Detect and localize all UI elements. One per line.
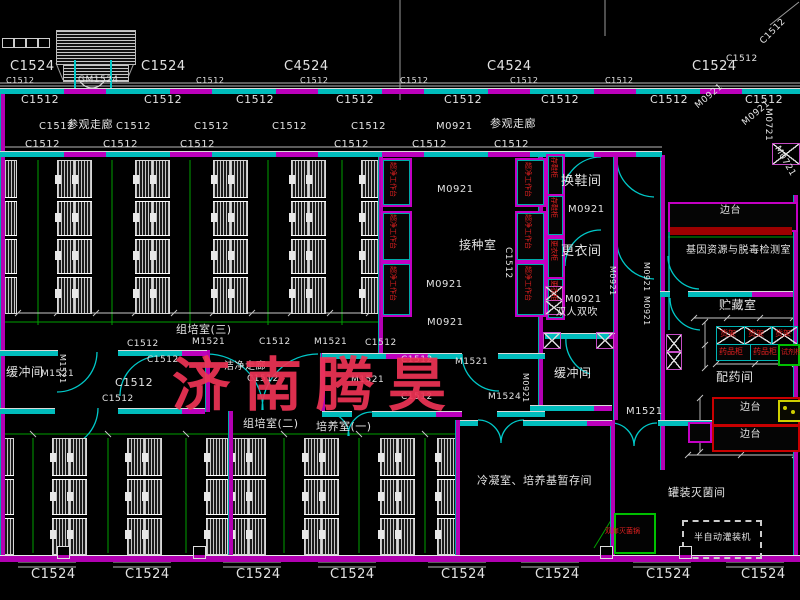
window-label: C1512 — [144, 94, 182, 105]
rack-shelf-line — [304, 514, 322, 519]
equipment-label: 超净工作台 — [389, 162, 396, 197]
rack-mark — [150, 289, 156, 298]
window-label: C1512 — [6, 77, 34, 85]
culture-rack — [321, 438, 339, 555]
rack-mark — [302, 530, 308, 539]
rack-shelf-line — [206, 514, 228, 519]
wall — [455, 420, 460, 557]
door-label: M1524 — [488, 393, 521, 402]
tap-dot — [791, 410, 795, 414]
rack-shelf-line — [231, 514, 249, 519]
rack-shelf-line — [230, 235, 248, 240]
equipment-label: 货架 — [720, 330, 736, 338]
equipment-label: 超净工作台 — [524, 162, 531, 197]
rack-shelf-line — [74, 235, 92, 240]
air-shower-box — [666, 351, 682, 370]
rack-shelf-line — [127, 475, 145, 480]
window-frame-mark — [57, 546, 70, 559]
rack-mark — [228, 289, 234, 298]
room-label: 半自动灌装机 — [694, 534, 751, 543]
rack-mark — [378, 492, 384, 501]
door-arc — [478, 420, 524, 443]
door-label: M0721 — [763, 108, 772, 141]
window-label: C1524 — [535, 568, 580, 581]
rack-mark — [378, 530, 384, 539]
door-arc — [617, 160, 654, 197]
rack-shelf-line — [69, 475, 87, 480]
rack-mark — [142, 530, 148, 539]
rack-shelf-line — [230, 273, 248, 278]
room-label: 缓冲间 — [554, 367, 592, 379]
rack-shelf-line — [308, 197, 326, 202]
window-label: C1512 — [115, 377, 153, 388]
rack-shelf-line — [321, 475, 339, 480]
room-label: 双人双吹 — [556, 308, 598, 318]
rack-mark — [289, 289, 295, 298]
rack-mark — [142, 453, 148, 462]
rack-shelf-line — [291, 273, 309, 278]
staircase-upper — [56, 30, 136, 65]
door-label: M0921 — [426, 280, 463, 290]
equipment-label: 货架 — [748, 330, 764, 338]
rack-shelf-line — [437, 514, 456, 519]
culture-rack — [152, 160, 170, 314]
window-label: C1512 — [180, 140, 215, 150]
rack-mark — [125, 530, 131, 539]
rack-shelf-line — [437, 475, 456, 480]
rack-shelf-line — [152, 273, 170, 278]
window-label: GM1524 — [78, 76, 119, 85]
rack-shelf-line — [74, 273, 92, 278]
wall — [523, 420, 612, 426]
window-label: C1524 — [646, 568, 691, 581]
rack-mark — [125, 453, 131, 462]
rack-shelf-line — [380, 475, 398, 480]
wall — [0, 350, 58, 356]
window-label: C1512 — [196, 77, 224, 85]
window-label: C1512 — [726, 55, 758, 64]
window-label: C1512 — [194, 122, 229, 132]
rack-shelf-line — [152, 197, 170, 202]
culture-rack — [230, 160, 248, 314]
room-label: 换鞋间 — [561, 175, 602, 188]
rack-mark — [55, 213, 61, 222]
rack-mark — [435, 530, 441, 539]
rack-shelf-line — [291, 197, 309, 202]
wall — [497, 411, 545, 417]
rack-mark — [319, 453, 325, 462]
window-label: C1512 — [21, 94, 59, 105]
wall-fixture — [14, 38, 26, 48]
rack-mark — [133, 213, 139, 222]
rack-mark — [306, 251, 312, 260]
door-arc — [611, 423, 657, 446]
bench-top-bar — [670, 227, 792, 235]
door-label: M0921 — [427, 318, 464, 328]
wall — [0, 408, 55, 414]
door-label: M0921 — [642, 296, 650, 326]
window-label: C1512 — [400, 77, 428, 85]
room-label: 组培室(三) — [176, 324, 232, 335]
rack-mark — [319, 530, 325, 539]
rack-mark — [150, 213, 156, 222]
door-label: M0921 — [565, 295, 602, 305]
window-label: C1524 — [741, 568, 786, 581]
equipment-label: 试剂柜 — [781, 349, 800, 356]
rack-mark — [306, 213, 312, 222]
window-label: C1524 — [236, 568, 281, 581]
door-label: M0921 — [437, 185, 474, 195]
equipment-label: 药品柜 — [719, 348, 743, 356]
window-label: C1512 — [503, 247, 512, 279]
rack-shelf-line — [74, 197, 92, 202]
rack-mark — [55, 289, 61, 298]
rack-shelf-line — [213, 197, 231, 202]
window-frame-mark — [679, 546, 692, 559]
window-label: C1512 — [494, 140, 529, 150]
rack-shelf-line — [52, 475, 70, 480]
rack-shelf-line — [380, 514, 398, 519]
equipment-label: 存鞋柜 — [550, 197, 557, 218]
window-label: C1512 — [444, 94, 482, 105]
window-label: C1512 — [351, 122, 386, 132]
window-label: C1512 — [605, 77, 633, 85]
wall — [688, 291, 793, 297]
rack-mark — [72, 251, 78, 260]
door-label: M0921 — [608, 266, 616, 296]
rack-shelf-line — [144, 514, 162, 519]
culture-rack — [144, 438, 162, 555]
rack-mark — [319, 492, 325, 501]
culture-rack — [206, 438, 228, 555]
rack-shelf-line — [213, 235, 231, 240]
watermark: 济南腾昊 — [172, 338, 460, 422]
culture-rack — [69, 438, 87, 555]
wall-fixture — [2, 38, 14, 48]
culture-rack — [308, 160, 326, 314]
room-label: 边台 — [740, 403, 761, 413]
culture-rack — [397, 438, 415, 555]
rack-mark — [228, 213, 234, 222]
room-label: 缓冲间 — [6, 366, 44, 378]
window-label: C4524 — [487, 60, 532, 73]
window-label: C1512 — [334, 140, 369, 150]
rack-mark — [67, 530, 73, 539]
room-label: 基因资源与脱毒检测室 — [686, 246, 791, 256]
window-frame-mark — [193, 546, 206, 559]
window-label: C1524 — [31, 568, 76, 581]
room-label: 配药间 — [716, 371, 754, 383]
window-label: C1524 — [10, 60, 55, 73]
rack-shelf-line — [231, 475, 249, 480]
window-label: C1512 — [650, 94, 688, 105]
rack-shelf-line — [248, 475, 266, 480]
rack-shelf-line — [135, 273, 153, 278]
air-shower-box — [543, 332, 561, 349]
window-label: C1512 — [541, 94, 579, 105]
wall — [228, 411, 233, 557]
door-arc — [668, 256, 699, 289]
equipment-label: 双扉灭菌锅 — [605, 528, 640, 535]
rack-mark — [133, 175, 139, 184]
wall-fixture — [26, 38, 38, 48]
rack-mark — [359, 213, 365, 222]
rack-mark — [289, 251, 295, 260]
counter-box — [688, 422, 712, 443]
rack-shelf-line — [321, 514, 339, 519]
room-label: 培养室(一) — [316, 421, 372, 432]
window-label: C1512 — [510, 77, 538, 85]
rack-mark — [72, 175, 78, 184]
wall — [530, 405, 612, 411]
rack-mark — [359, 251, 365, 260]
rack-mark — [67, 492, 73, 501]
window-label: C1512 — [102, 395, 134, 404]
rack-mark — [289, 175, 295, 184]
sink — [778, 400, 800, 422]
rack-mark — [72, 289, 78, 298]
rack-mark — [125, 492, 131, 501]
rack-shelf-line — [206, 475, 228, 480]
window-label: C1524 — [330, 568, 375, 581]
rack-mark — [142, 492, 148, 501]
equipment-label: 超净工作台 — [524, 214, 531, 249]
window-label: C1512 — [25, 140, 60, 150]
door-label: M1521 — [58, 354, 66, 384]
door-label: M0921 — [642, 262, 650, 292]
rack-shelf-line — [57, 273, 75, 278]
rack-mark — [211, 289, 217, 298]
equipment-label: 更衣柜 — [550, 280, 557, 301]
equipment-label: 超净工作台 — [389, 266, 396, 301]
window-label: C1524 — [441, 568, 486, 581]
window-frame-mark — [600, 546, 613, 559]
rack-mark — [204, 492, 210, 501]
window-label: C1512 — [412, 140, 447, 150]
room-label: 参观走廊 — [67, 119, 113, 130]
rack-mark — [395, 530, 401, 539]
rack-mark — [395, 453, 401, 462]
cad-floorplan: C1524C1524C4524C4524C1524C1512C1512GM152… — [0, 0, 800, 600]
window-label: C1512 — [336, 94, 374, 105]
rack-mark — [395, 492, 401, 501]
rack-mark — [359, 289, 365, 298]
rack-mark — [55, 175, 61, 184]
window-label: C1512 — [103, 140, 138, 150]
rack-shelf-line — [127, 514, 145, 519]
window-label: C1512 — [116, 122, 151, 132]
room-label: 贮藏室 — [719, 299, 757, 311]
wall — [660, 291, 670, 297]
rack-shelf-line — [397, 514, 415, 519]
air-shower-box — [596, 332, 614, 349]
rack-mark — [204, 453, 210, 462]
rack-mark — [246, 530, 252, 539]
rack-shelf-line — [308, 273, 326, 278]
rack-mark — [289, 213, 295, 222]
rack-mark — [246, 492, 252, 501]
rack-mark — [359, 175, 365, 184]
room-label: 更衣间 — [561, 245, 602, 258]
rack-mark — [306, 175, 312, 184]
rack-mark — [204, 530, 210, 539]
rack-mark — [302, 492, 308, 501]
window-label: C1512 — [272, 122, 307, 132]
rack-mark — [306, 289, 312, 298]
rack-shelf-line — [248, 514, 266, 519]
rack-shelf-line — [135, 197, 153, 202]
wall — [0, 88, 5, 560]
rack-shelf-line — [144, 475, 162, 480]
equipment-label: 超净工作台 — [524, 266, 531, 301]
rack-mark — [211, 213, 217, 222]
rack-mark — [211, 251, 217, 260]
rack-mark — [228, 251, 234, 260]
rack-shelf-line — [135, 235, 153, 240]
rack-mark — [435, 492, 441, 501]
culture-rack — [248, 438, 266, 555]
window-label: C4524 — [284, 60, 329, 73]
room-label: 边台 — [740, 430, 761, 440]
rack-shelf-line — [57, 197, 75, 202]
rack-mark — [67, 453, 73, 462]
equipment-label: 更衣柜 — [550, 240, 557, 261]
rack-mark — [50, 530, 56, 539]
room-label: 边台 — [720, 206, 741, 216]
culture-rack — [74, 160, 92, 314]
rack-mark — [302, 453, 308, 462]
rack-mark — [50, 453, 56, 462]
rack-mark — [378, 453, 384, 462]
wall-fixture — [38, 38, 50, 48]
rack-shelf-line — [397, 475, 415, 480]
window-label: C1512 — [127, 340, 159, 349]
equipment-label: 货架 — [775, 330, 791, 338]
door-label: M0921 — [436, 122, 473, 132]
rack-mark — [55, 251, 61, 260]
window-label: C1524 — [125, 568, 170, 581]
wall — [498, 353, 545, 359]
equipment-label: 药品柜 — [753, 348, 777, 356]
rack-mark — [246, 453, 252, 462]
door-arc — [670, 298, 700, 330]
door-label: M0921 — [568, 205, 605, 215]
window-label: C1512 — [300, 77, 328, 85]
equipment-label: 存鞋柜 — [550, 157, 557, 178]
wall — [460, 420, 478, 426]
rack-shelf-line — [57, 235, 75, 240]
equipment-label: 超净工作台 — [389, 214, 396, 249]
door-label: M1521 — [626, 407, 663, 417]
rack-mark — [150, 175, 156, 184]
rack-mark — [228, 175, 234, 184]
rack-mark — [150, 251, 156, 260]
window-label: C1524 — [141, 60, 186, 73]
culture-rack — [437, 438, 456, 555]
rack-mark — [72, 213, 78, 222]
rack-shelf-line — [291, 235, 309, 240]
rack-mark — [50, 492, 56, 501]
rack-shelf-line — [52, 514, 70, 519]
room-label: 冷凝室、培养基暂存间 — [477, 475, 592, 486]
rack-shelf-line — [230, 197, 248, 202]
room-label: 罐装灭菌间 — [668, 487, 726, 498]
rack-shelf-line — [213, 273, 231, 278]
room-label: 参观走廊 — [490, 118, 536, 129]
rack-shelf-line — [304, 475, 322, 480]
rack-shelf-line — [69, 514, 87, 519]
rack-shelf-line — [308, 235, 326, 240]
rack-mark — [133, 251, 139, 260]
stair-rail — [74, 60, 76, 88]
tap-dot — [783, 406, 787, 410]
wall — [793, 195, 798, 558]
room-label: 接种室 — [459, 239, 497, 251]
centerlines — [56, 0, 799, 100]
rack-mark — [133, 289, 139, 298]
rack-mark — [211, 175, 217, 184]
rack-mark — [435, 453, 441, 462]
rack-shelf-line — [152, 235, 170, 240]
door-label: M0921 — [521, 373, 529, 403]
window-label: C1512 — [236, 94, 274, 105]
